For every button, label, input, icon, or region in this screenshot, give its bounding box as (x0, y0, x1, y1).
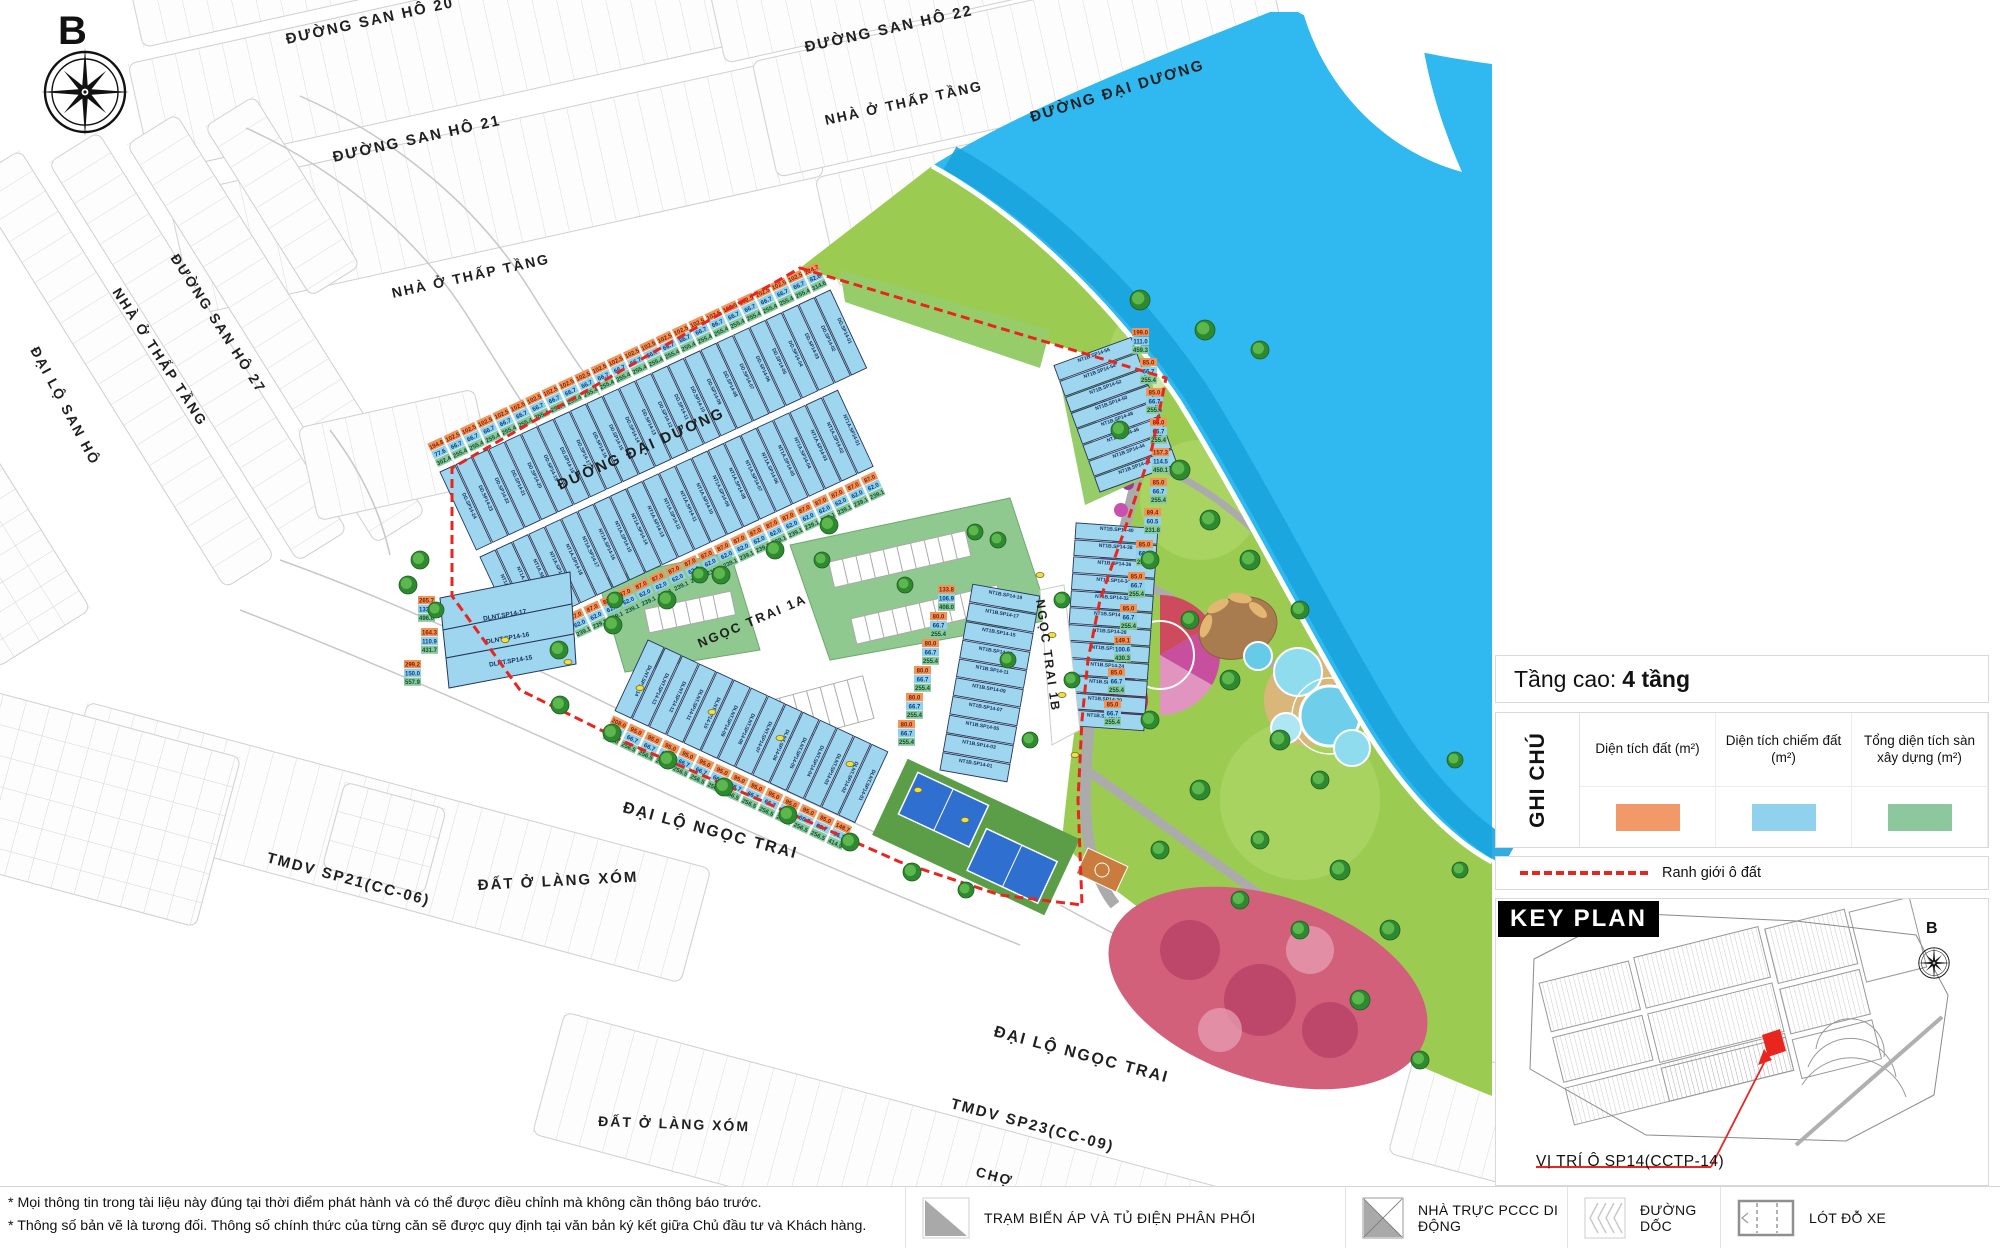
area-stack-value: 85.0 (1111, 671, 1123, 677)
area-stack-value: 255.4 (1129, 592, 1145, 598)
area-stack-value: 557.9 (405, 680, 421, 686)
area-stack-value: 66.7 (1131, 583, 1143, 589)
area-stack-value: 80.0 (933, 615, 945, 621)
tree-icon (1291, 601, 1309, 619)
tree-icon (1380, 920, 1400, 940)
street-light-dot (776, 735, 784, 740)
area-stack-value: 100.6 (1115, 647, 1131, 653)
legend-item-label: ĐƯỜNG DỐC (1640, 1202, 1720, 1234)
area-stack-value: 66.7 (1149, 399, 1161, 405)
area-stack-value: 255.4 (1121, 624, 1137, 630)
area-stack-value: 60.5 (1147, 519, 1159, 525)
tree-icon (990, 532, 1006, 548)
area-stack-value: 255.4 (923, 659, 939, 665)
tree-icon (1270, 730, 1290, 750)
area-stack-value: 80.0 (917, 669, 929, 675)
street-light-dot (564, 659, 572, 664)
legend-item-label: TRẠM BIẾN ÁP VÀ TỦ ĐIỆN PHÂN PHỐI (984, 1210, 1256, 1226)
tree-icon (1141, 551, 1159, 569)
legend-item-ramp: ĐƯỜNG DỐC (1567, 1187, 1720, 1248)
tree-icon (1181, 611, 1199, 629)
land-area-swatch (1616, 804, 1680, 831)
area-stack-value: 85.0 (1107, 703, 1119, 709)
area-stack-value: 66.7 (1123, 615, 1135, 621)
parking-icon (1737, 1199, 1795, 1237)
area-stack-value: 231.8 (1145, 528, 1161, 534)
tree-icon (1151, 841, 1169, 859)
area-stack-value: 66.7 (901, 731, 913, 737)
area-stack-value: 66.7 (909, 704, 921, 710)
tree-icon (1251, 341, 1269, 359)
legend-swatch-cell (1852, 787, 1988, 847)
tree-icon (399, 576, 417, 594)
street-label: ĐẠI LỘ NGỌC TRAI (992, 1022, 1171, 1087)
compass-rose: B (41, 9, 129, 136)
street-light-dot (961, 817, 969, 822)
tree-icon (841, 833, 859, 851)
area-stack-value: 85.0 (1139, 543, 1151, 549)
tree-icon (692, 567, 708, 583)
parcel-block (0, 448, 91, 667)
area-stack-value: 66.7 (1111, 679, 1123, 685)
keyplan-title: KEY PLAN (1498, 901, 1659, 937)
footprint-area-swatch (1752, 804, 1816, 831)
tree-icon (903, 863, 921, 881)
area-stack-value: 408.0 (939, 605, 955, 611)
area-stack-value: 255.4 (1151, 498, 1167, 504)
legend-item-label: NHÀ TRỰC PCCC DI ĐỘNG (1418, 1202, 1567, 1234)
tree-icon (1195, 320, 1215, 340)
area-stack-value: 150.0 (405, 671, 421, 677)
area-stack-value: 106.9 (939, 596, 955, 602)
area-stack-value: 255.4 (907, 713, 923, 719)
legend-swatch-cell (1716, 787, 1852, 847)
tree-icon (1054, 592, 1070, 608)
area-stack-value: 255.4 (1141, 378, 1157, 384)
area-stack-value: 299.2 (405, 663, 421, 669)
tree-icon (1111, 421, 1129, 439)
street-light-dot (846, 761, 854, 766)
street-light-dot (1036, 572, 1044, 577)
area-stack-value: 157.3 (1153, 451, 1169, 457)
area-stack-value: 164.3 (422, 631, 438, 637)
legend-item-label: LÓT ĐỖ XE (1809, 1210, 1886, 1226)
area-stack-value: 80.0 (925, 642, 937, 648)
tree-icon (766, 541, 784, 559)
street-light-dot (636, 685, 644, 690)
area-stack-value: 110.9 (422, 639, 437, 645)
area-stack-value: 199.0 (1133, 331, 1149, 337)
tree-icon (820, 516, 838, 534)
tree-icon (1064, 672, 1080, 688)
keyplan-compass-label: B (1926, 920, 1938, 937)
area-stack-value: 255.4 (1105, 720, 1121, 726)
tree-icon (967, 524, 983, 540)
area-stack-value: 430.3 (1115, 656, 1131, 662)
tree-icon (1130, 290, 1150, 310)
area-stack-value: 459.3 (1133, 348, 1149, 354)
tree-icon (604, 616, 622, 634)
tree-icon (1452, 862, 1468, 878)
area-stack-value: 66.7 (1153, 489, 1165, 495)
tree-icon (1231, 891, 1249, 909)
tree-icon (551, 696, 569, 714)
area-stack-value: 255.4 (915, 686, 931, 692)
boundary-dash-sample (1520, 871, 1648, 875)
boundary-label: Ranh giới ô đất (1662, 865, 1761, 881)
street-light-dot (1071, 752, 1079, 757)
area-stack-value: 114.5 (1153, 459, 1168, 465)
boundary-legend-row: Ranh giới ô đất (1495, 856, 1989, 890)
fire-station-icon (1362, 1197, 1404, 1239)
area-stack-value: 66.7 (925, 650, 937, 656)
legend-item-parking: LÓT ĐỖ XE (1720, 1187, 2000, 1248)
legend-col-header: Diện tích chiếm đất (m²) (1716, 713, 1852, 787)
legend-table: GHI CHÚ Diện tích đất (m²) Diện tích chi… (1495, 712, 1989, 848)
compass-north-label: B (58, 9, 87, 53)
area-stack-value: 66.7 (1107, 711, 1119, 717)
ramp-icon (1584, 1197, 1626, 1239)
footer-note-line: * Mọi thông tin trong tài liệu này đúng … (8, 1192, 895, 1215)
floors-box: Tầng cao: 4 tầng (1495, 655, 1989, 703)
footer-bar: * Mọi thông tin trong tài liệu này đúng … (0, 1186, 2000, 1248)
area-stack-value: 85.0 (1153, 481, 1165, 487)
area-stack-value: 149.1 (1115, 639, 1131, 645)
floor-area-swatch (1888, 804, 1952, 831)
area-stack-value: 133.8 (939, 588, 955, 594)
area-stack-value: 255.4 (1109, 688, 1125, 694)
area-stack-value: 85.0 (1149, 391, 1161, 397)
tree-icon (1170, 460, 1190, 480)
tree-icon (1411, 1051, 1429, 1069)
tree-icon (1190, 780, 1210, 800)
tree-icon (428, 602, 444, 618)
street-light-dot (501, 637, 509, 642)
tree-icon (658, 591, 676, 609)
wedge-lots: DLNT.SP14-17DLNT.SP14-16DLNT.SP14-15 (440, 572, 576, 688)
tree-icon (1311, 771, 1329, 789)
legend-item-transformer: TRẠM BIẾN ÁP VÀ TỦ ĐIỆN PHÂN PHỐI (905, 1187, 1345, 1248)
area-stack-value: 80.0 (909, 696, 921, 702)
tree-icon (897, 577, 913, 593)
tree-icon (1330, 860, 1350, 880)
tree-icon (603, 724, 621, 742)
area-stack-value: 431.7 (422, 648, 438, 654)
transformer-icon (922, 1197, 970, 1239)
area-stack-value: 85.0 (1143, 361, 1155, 367)
keyplan-location-label: VỊ TRÍ Ô SP14(CCTP-14) (1536, 1153, 1724, 1171)
legend-col-header: Diện tích đất (m²) (1580, 713, 1716, 787)
tree-icon (814, 552, 830, 568)
area-stack-value: 255.4 (899, 740, 915, 746)
floors-value: 4 tầng (1622, 666, 1690, 693)
tree-icon (715, 778, 733, 796)
tree-icon (1251, 831, 1269, 849)
legend-swatch-cell (1580, 787, 1716, 847)
tree-icon (1141, 711, 1159, 729)
tree-icon (1291, 921, 1309, 939)
area-stack-value: 89.4 (1147, 511, 1159, 517)
tree-icon (779, 806, 797, 824)
tree-icon (712, 566, 730, 584)
tree-icon (1447, 752, 1463, 768)
street-light-dot (914, 787, 922, 792)
keyplan-minimap: B (1496, 899, 1988, 1185)
tree-icon (659, 751, 677, 769)
area-stack-value: 80.0 (901, 723, 913, 729)
tree-icon (958, 882, 974, 898)
tree-icon (1022, 732, 1038, 748)
legend-item-fire-station: NHÀ TRỰC PCCC DI ĐỘNG (1345, 1187, 1567, 1248)
area-stack-value: 66.7 (933, 623, 945, 629)
tree-icon (607, 592, 623, 608)
floors-label: Tầng cao: (1514, 666, 1616, 693)
area-stack-value: 85.0 (1131, 575, 1143, 581)
tree-icon (411, 551, 429, 569)
tree-icon (1350, 990, 1370, 1010)
legend-col-header: Tổng diện tích sàn xây dựng (m²) (1852, 713, 1988, 787)
area-stack-value: 66.7 (917, 677, 929, 683)
footer-note-line: * Thông số bản vẽ là tương đối. Thông số… (8, 1215, 895, 1238)
area-stack-value: 255.4 (931, 632, 947, 638)
keyplan-box: KEY PLAN VỊ TRÍ Ô SP14(CCTP-14) B (1495, 898, 1989, 1186)
tree-icon (1000, 652, 1016, 668)
area-stack-value: 85.0 (1123, 607, 1135, 613)
tree-icon (550, 641, 568, 659)
area-stack-value: 450.1 (1153, 468, 1169, 474)
legend-title: GHI CHÚ (1526, 732, 1550, 828)
footer-notes: * Mọi thông tin trong tài liệu này đúng … (0, 1187, 905, 1248)
legend-title-cell: GHI CHÚ (1496, 713, 1580, 847)
tree-icon (1220, 670, 1240, 690)
tree-icon (1200, 510, 1220, 530)
masterplan-screenshot: { "compass": {"label": "B"}, "panel": { … (0, 0, 2000, 1248)
street-light-dot (708, 709, 716, 714)
tree-icon (1240, 550, 1260, 570)
area-stack-value: 111.0 (1133, 339, 1148, 345)
